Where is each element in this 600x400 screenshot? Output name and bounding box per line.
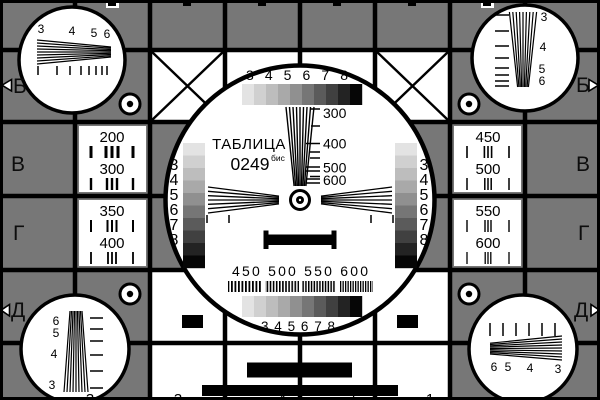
card-code: 0249 (231, 154, 270, 174)
edge-letter-b-right: Б (576, 74, 590, 97)
freq-label: 350 (99, 203, 124, 220)
wedge-digit: 3 (49, 378, 56, 392)
wedge-digit: 6 (539, 74, 546, 88)
test-card-canvas: 3 4 5 6 3 4 5 6 6 5 4 3 6 5 4 3 (0, 0, 600, 400)
card-title: ТАБЛИЦА (212, 136, 286, 153)
grayscale-column-left (183, 143, 205, 268)
edge-letter-v-right: В (576, 153, 590, 176)
freq-label: 550 (475, 203, 500, 220)
wedge-digit: 4 (69, 24, 76, 38)
bottom-freq-labels: 450 500 550 600 (232, 263, 368, 279)
wedge-digit: 4 (540, 40, 547, 54)
edge-letter-g-right: Г (578, 222, 589, 245)
wedge-digit: 3 (541, 10, 548, 24)
corner-circle-top-right: 3 4 5 6 (472, 5, 578, 111)
grayscale-bar-bottom (242, 296, 362, 317)
wedge-digit: 4 (527, 361, 534, 375)
wedge-digit: 5 (505, 360, 512, 374)
wedge-digit: 5 (91, 26, 98, 40)
wedge-digit: 6 (491, 360, 498, 374)
wedge-digit: 6 (104, 27, 111, 41)
tv-test-card: 3 4 5 6 3 4 5 6 6 5 4 3 6 5 4 3 (0, 0, 600, 400)
wedge-digit: 5 (53, 326, 60, 340)
target-marker-top-right (459, 94, 479, 114)
svg-text:8: 8 (170, 232, 179, 249)
wedge-digit: 4 (51, 347, 58, 361)
wedge-label-300: 300 (323, 105, 347, 121)
freq-label: 400 (99, 235, 124, 252)
freq-label: 300 (99, 161, 124, 178)
freq-label: 200 (99, 129, 124, 146)
wedge-label-400: 400 (323, 136, 347, 152)
target-marker-bottom-left (120, 284, 140, 304)
black-square-right (397, 315, 418, 328)
edge-letter-d-left: Д (11, 299, 25, 322)
corner-circle-bottom-right: 6 5 4 3 (469, 295, 577, 400)
bottom-bar-long (202, 385, 398, 396)
svg-text:8: 8 (420, 232, 429, 249)
bottom-bar-short (247, 363, 352, 378)
card-code-suffix: бис (271, 153, 286, 163)
edge-letter-v-left: В (11, 153, 25, 176)
wedge-label-600: 600 (323, 172, 347, 188)
edge-letter-b-left: Б (13, 75, 27, 98)
edge-letter-g-left: Г (13, 222, 24, 245)
black-square-left (182, 315, 203, 328)
corner-circle-bottom-left: 6 5 4 3 (21, 295, 129, 400)
target-marker-bottom-right (459, 284, 479, 304)
corner-circle-top-left: 3 4 5 6 (19, 7, 125, 113)
freq-label: 600 (475, 235, 500, 252)
grayscale-column-right (395, 143, 417, 268)
edge-letter-d-right: Д (574, 299, 588, 322)
wedge-digit: 3 (555, 362, 562, 376)
bottom-scale-digits: 3 4 5 6 7 8 (261, 319, 335, 334)
target-marker-top-left (120, 94, 140, 114)
freq-label: 500 (475, 161, 500, 178)
grayscale-column-right-digits: 3 4 5 6 7 8 (420, 157, 429, 249)
grayscale-column-left-digits: 3 4 5 6 7 8 (170, 157, 179, 249)
grayscale-bar-top (242, 84, 362, 105)
wedge-digit: 3 (38, 22, 45, 36)
freq-label: 450 (475, 129, 500, 146)
